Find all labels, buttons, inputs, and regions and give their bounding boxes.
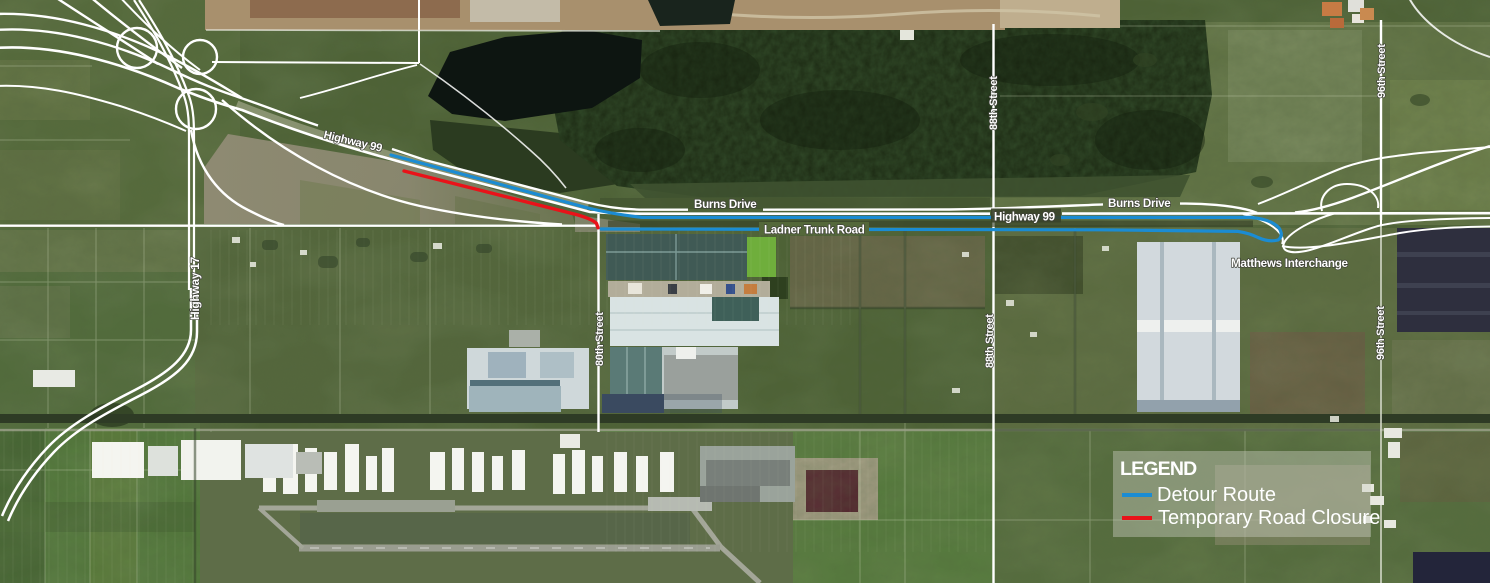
- svg-text:96th Street: 96th Street: [1376, 44, 1388, 98]
- svg-text:Matthews Interchange: Matthews Interchange: [1231, 257, 1349, 270]
- svg-text:Temporary Road Closure: Temporary Road Closure: [1158, 507, 1380, 529]
- svg-text:Burns Drive: Burns Drive: [694, 198, 757, 211]
- svg-text:88th Street: 88th Street: [984, 314, 996, 368]
- svg-text:88th Street: 88th Street: [988, 76, 1000, 130]
- svg-text:Burns Drive: Burns Drive: [1108, 197, 1171, 210]
- svg-text:Highway 99: Highway 99: [994, 211, 1056, 224]
- svg-text:Highway 17: Highway 17: [188, 256, 202, 320]
- svg-text:LEGEND: LEGEND: [1120, 458, 1197, 480]
- svg-text:96th Street: 96th Street: [1375, 306, 1387, 360]
- svg-text:Ladner Trunk Road: Ladner Trunk Road: [764, 224, 865, 237]
- svg-text:80th Street: 80th Street: [594, 312, 606, 366]
- svg-text:Detour Route: Detour Route: [1157, 484, 1276, 506]
